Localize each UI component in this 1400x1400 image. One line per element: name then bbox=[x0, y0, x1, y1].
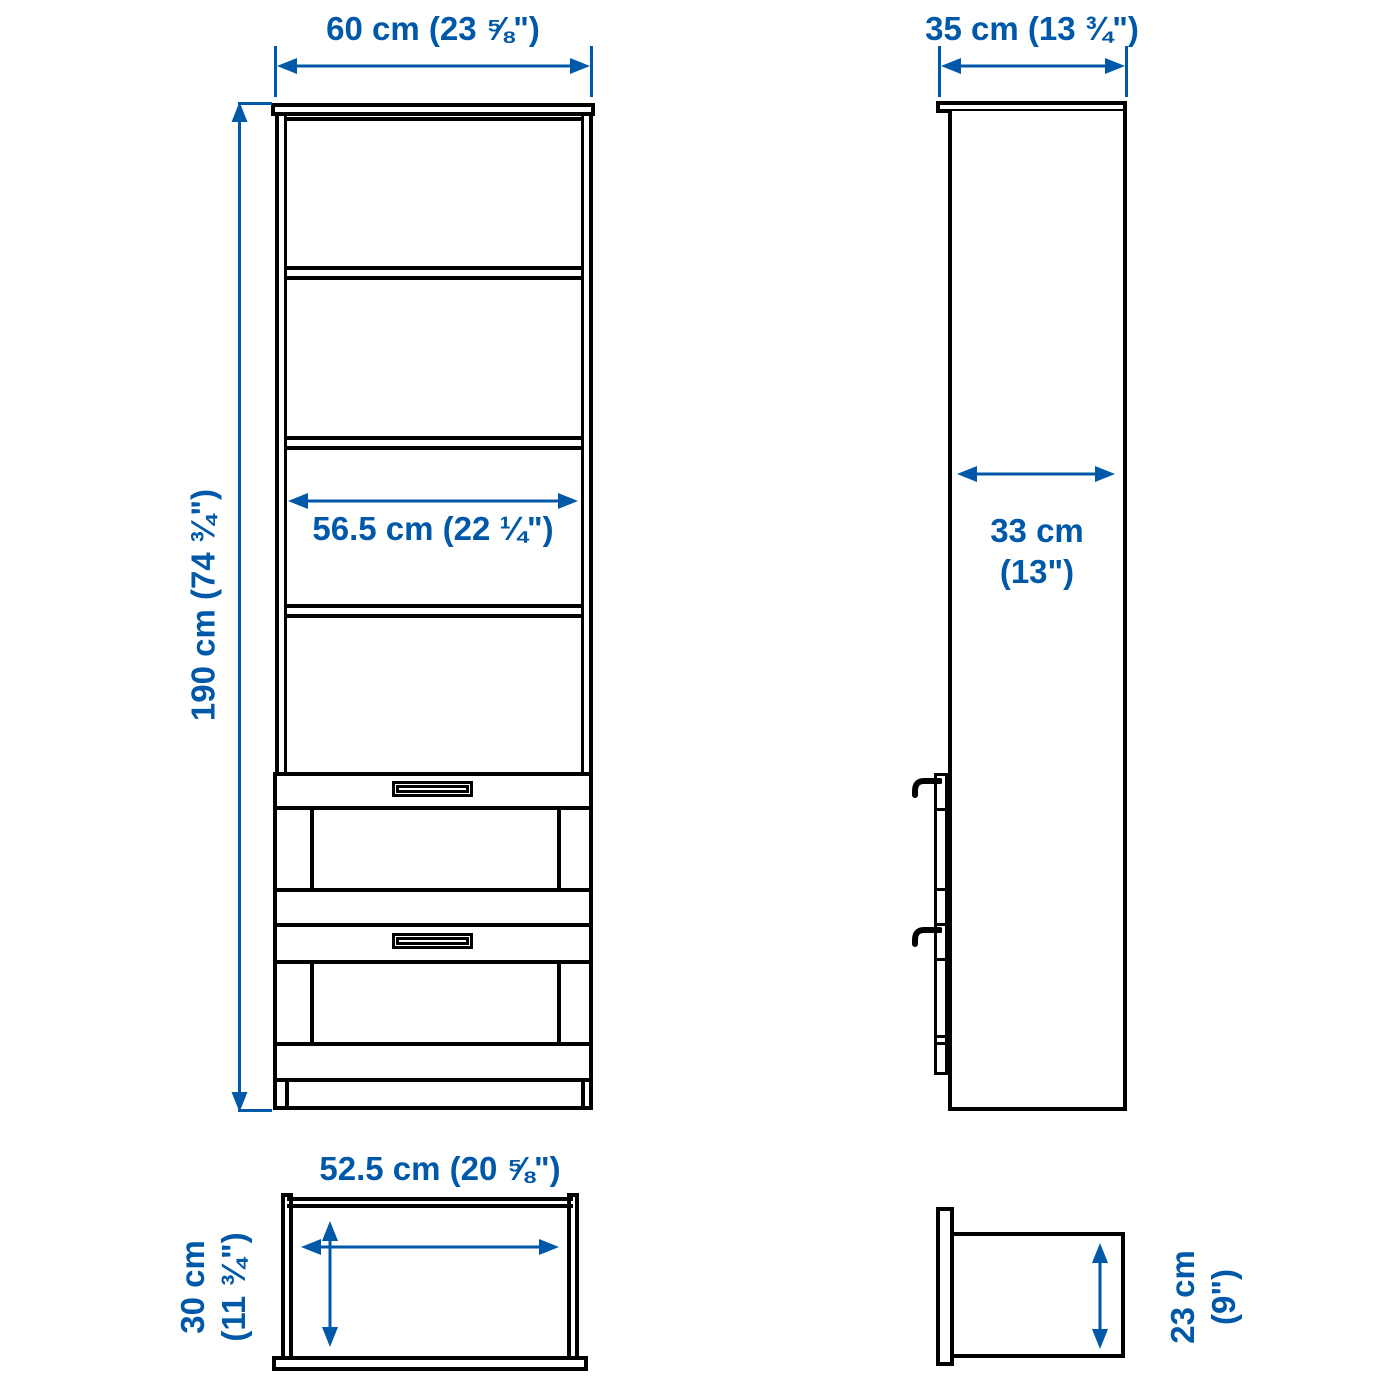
drawer2-handle-recess bbox=[396, 937, 469, 945]
drawer2-panel-left-edge bbox=[310, 960, 314, 1046]
inner-depth-label-line1: 33 cm bbox=[955, 510, 1119, 551]
drawer1-panel-left-edge bbox=[310, 806, 314, 892]
inner-depth-label-line2: (13") bbox=[955, 551, 1119, 592]
height-label-190cm: 190 cm (74 ¾") bbox=[183, 489, 224, 721]
width-dimension-arrow-60cm bbox=[266, 40, 600, 102]
product-dimension-diagram: 60 cm (23 ⅝") 35 cm (13 ¾") 190 cm (74 ¾… bbox=[0, 0, 1400, 1400]
drawer-gap-edge bbox=[277, 923, 589, 927]
height-dimension-arrow-190cm bbox=[226, 94, 274, 1118]
drawer-depth-label-line1: 30 cm bbox=[172, 1232, 213, 1341]
drawer-side-view-front-panel bbox=[936, 1207, 954, 1366]
drawer-top-view-back-edge bbox=[287, 1197, 573, 1201]
side-drawer-strip-line bbox=[937, 808, 945, 811]
drawer2-bottom-edge bbox=[277, 1042, 589, 1046]
inner-depth-dimension-arrow-33cm bbox=[954, 460, 1118, 488]
drawer-depth-dimension-arrow-30cm bbox=[316, 1218, 344, 1350]
drawer-height-dimension-arrow-23cm bbox=[1086, 1240, 1114, 1352]
drawer1-rail-bottom-edge bbox=[277, 806, 589, 810]
drawer2-rail-bottom-edge bbox=[277, 960, 589, 964]
front-right-side-panel bbox=[581, 116, 593, 772]
drawer-depth-label-line2: (11 ¾") bbox=[213, 1232, 254, 1341]
inner-width-label-56cm: 56.5 cm (22 ¼") bbox=[283, 508, 583, 549]
side-drawer-strip-line bbox=[937, 1042, 945, 1045]
front-top-panel bbox=[271, 103, 595, 116]
drawer2-panel-right-edge bbox=[557, 960, 561, 1046]
drawer1-handle-recess bbox=[396, 785, 469, 793]
front-shelf-2 bbox=[287, 436, 581, 450]
drawer1-handle bbox=[392, 781, 473, 797]
drawer1-bottom-edge bbox=[277, 888, 589, 892]
side-drawer-strip-line bbox=[937, 1035, 945, 1038]
inner-depth-label-33cm: 33 cm (13") bbox=[955, 510, 1119, 592]
drawer1-panel-right-edge bbox=[557, 806, 561, 892]
front-shelf-3 bbox=[287, 604, 581, 618]
side-body-panel bbox=[948, 111, 1127, 1111]
right-foot-edge bbox=[581, 1078, 585, 1106]
drawer-top-view-left-rail bbox=[281, 1193, 293, 1361]
depth-label-35cm: 35 cm (13 ¾") bbox=[882, 8, 1182, 49]
depth-dimension-arrow-35cm bbox=[928, 40, 1137, 102]
front-top-inner-edge bbox=[287, 117, 581, 121]
side-drawer-strip-line bbox=[937, 888, 945, 891]
left-foot-edge bbox=[285, 1078, 289, 1106]
drawer-height-label-23cm: 23 cm (9") bbox=[1162, 1250, 1244, 1344]
drawer-height-label-line1: 23 cm bbox=[1162, 1250, 1203, 1344]
front-left-side-panel bbox=[275, 116, 287, 772]
plinth-top-edge bbox=[277, 1078, 589, 1082]
drawer2-handle bbox=[392, 933, 473, 949]
drawer-depth-label-30cm: 30 cm (11 ¾") bbox=[172, 1232, 254, 1341]
drawer-top-view-right-rail bbox=[567, 1193, 579, 1361]
drawer-height-label-line2: (9") bbox=[1203, 1250, 1244, 1344]
drawer2-hook-handle-icon bbox=[906, 923, 942, 955]
front-shelf-1 bbox=[287, 266, 581, 280]
front-drawer-section bbox=[273, 772, 593, 1110]
drawer-width-label-52cm: 52.5 cm (20 ⅝") bbox=[240, 1148, 640, 1189]
side-drawer-strip-line bbox=[937, 958, 945, 961]
drawer-top-view-front-panel bbox=[272, 1356, 588, 1371]
width-label-60cm: 60 cm (23 ⅝") bbox=[233, 8, 633, 49]
drawer1-hook-handle-icon bbox=[906, 774, 942, 806]
drawer-top-view-back-inner-edge bbox=[287, 1204, 573, 1208]
